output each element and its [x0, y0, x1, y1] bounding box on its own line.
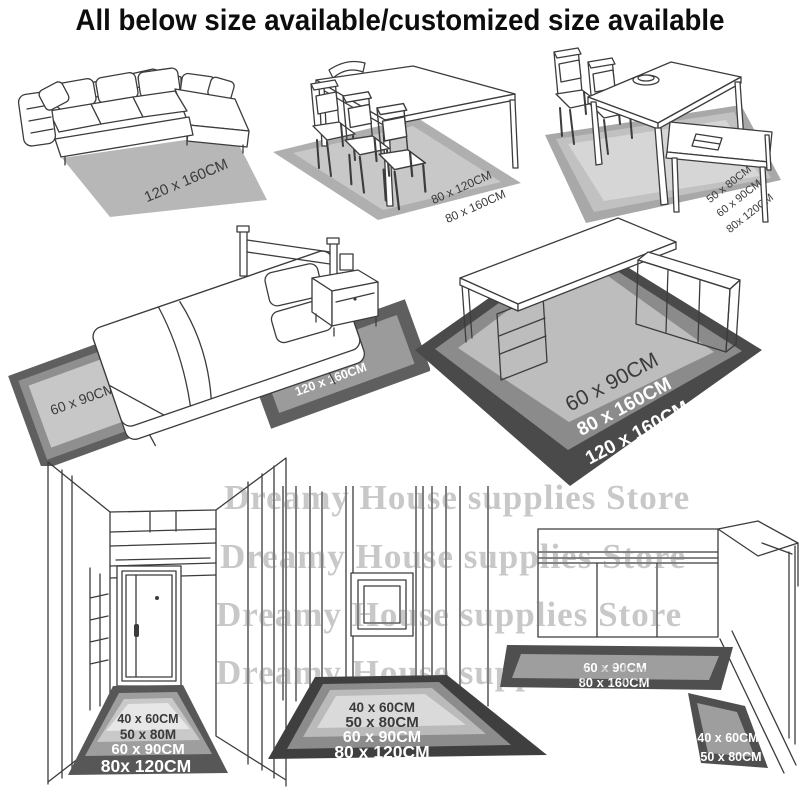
store-watermark: Dreamy House supplies Store	[216, 595, 682, 635]
store-watermark: Dreamy House supplies Store	[220, 537, 686, 577]
product-size-infographic: All below size available/customized size…	[0, 0, 800, 800]
bowl	[638, 75, 654, 81]
scene-bedroom: 80 x 160CM 120 x 160CM 60 x 90CM 80x 120…	[0, 214, 430, 466]
scene-desk: 60 x 90CM 80 x 160CM 120 x 160CM	[410, 210, 800, 500]
entry-door-drawing	[117, 566, 181, 686]
kitchen-small-rug: 40 x 60CM 50 x 80CM	[688, 693, 768, 768]
door-handle	[134, 624, 139, 637]
rug-size-label: 40 x 60CM	[117, 712, 178, 726]
rug-size-label: 40 x 60CM	[697, 731, 758, 745]
peephole	[155, 596, 159, 600]
lamp	[340, 254, 353, 270]
hallway-rug: 40 x 60CM 50 x 80M 60 x 90CM 80x 120CM	[68, 685, 228, 776]
scene-corridor: 40 x 60CM 50 x 80CM 60 x 90CM 80 x 120CM	[256, 486, 558, 800]
store-watermark: Dreamy House supplies Store	[216, 653, 682, 693]
scene-sofa: 120 x 160CM	[5, 45, 270, 240]
rug-size-label: 80x 120CM	[101, 756, 191, 776]
rug-size-label: 40 x 60CM	[349, 700, 415, 715]
store-watermark: Dreamy House supplies Store	[224, 478, 690, 518]
rug-size-label: 50 x 80M	[120, 727, 176, 742]
rug-size-label: 50 x 80CM	[700, 750, 761, 764]
rug-size-label: 80 x 120CM	[334, 742, 429, 762]
page-title: All below size available/customized size…	[32, 4, 768, 38]
